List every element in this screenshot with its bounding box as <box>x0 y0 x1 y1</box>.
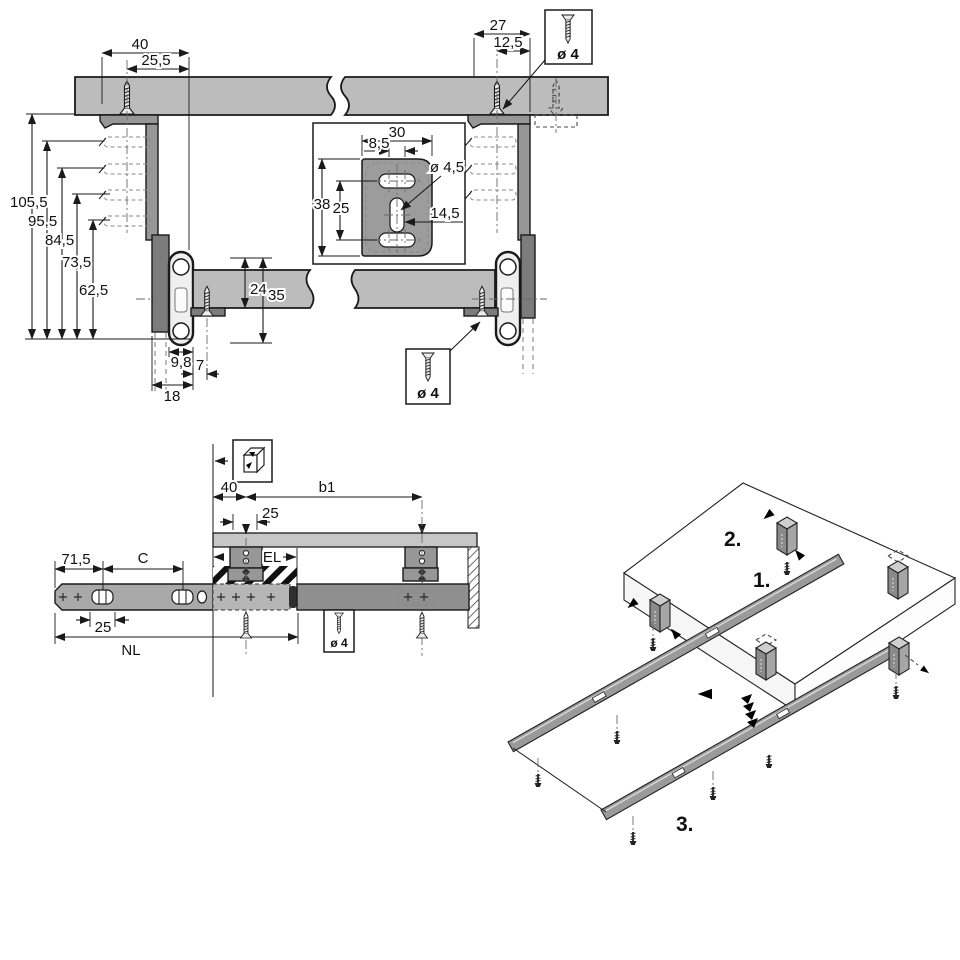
dim-label: 25,5 <box>141 52 170 69</box>
svg-text:9,8: 9,8 <box>171 354 192 371</box>
svg-text:105,5: 105,5 <box>10 194 48 211</box>
isometric-assembly-view: 2. 1. 3. <box>508 483 955 845</box>
top-cross-section-view: 40 25,5 27 12,5 105,5 95,5 84,5 73,5 62,… <box>10 10 608 405</box>
cube-orientation-icon <box>244 448 264 472</box>
svg-text:84,5: 84,5 <box>45 232 74 249</box>
spring-impact-arrows <box>741 694 758 728</box>
svg-text:C: C <box>138 550 149 567</box>
svg-text:12,5: 12,5 <box>493 34 522 51</box>
svg-text:ø 4: ø 4 <box>417 385 439 402</box>
dim-nominal-length: NL <box>55 613 298 659</box>
shelf-right <box>352 270 496 308</box>
shelf-board <box>624 483 955 711</box>
step-label-2: 2. <box>724 528 742 551</box>
side-top-panel <box>213 533 477 547</box>
svg-text:40: 40 <box>221 479 238 496</box>
svg-text:35: 35 <box>268 287 285 304</box>
screw-spec-box-bottom: ø 4 <box>406 322 480 404</box>
top-panel-left <box>75 77 335 115</box>
svg-text:24: 24 <box>250 281 267 298</box>
left-bracket <box>100 115 169 332</box>
svg-text:18: 18 <box>164 388 181 405</box>
svg-text:25: 25 <box>95 619 112 636</box>
cube-orientation-box <box>233 440 272 482</box>
svg-text:73,5: 73,5 <box>62 254 91 271</box>
dim-slot-pitch: 25 <box>76 612 129 636</box>
mounting-plate-detail-box: 30 8,5 ø 4,5 38 25 14,5 <box>313 123 465 264</box>
svg-text:25: 25 <box>333 200 350 217</box>
top-panel-right <box>341 77 608 115</box>
svg-text:14,5: 14,5 <box>430 205 459 222</box>
left-slide-rail <box>169 252 193 345</box>
svg-text:25: 25 <box>262 505 279 522</box>
svg-text:95,5: 95,5 <box>28 213 57 230</box>
svg-text:62,5: 62,5 <box>79 282 108 299</box>
svg-text:ø 4: ø 4 <box>557 46 579 63</box>
ball-bottom <box>173 323 189 339</box>
mounting-bracket <box>888 561 908 599</box>
svg-text:NL: NL <box>121 642 140 659</box>
mounting-bracket <box>756 642 776 680</box>
svg-text:38: 38 <box>314 196 331 213</box>
side-plan-view: 40 b1 25 EL <box>55 440 479 697</box>
dim-rail-width: 9,8 <box>169 347 193 390</box>
svg-text:EL: EL <box>263 549 281 566</box>
dim-bracket-width: 25 <box>220 505 279 530</box>
svg-text:8,5: 8,5 <box>369 135 390 152</box>
dim-label: 40 <box>132 36 149 53</box>
shelf-edge-line <box>513 748 606 812</box>
step-label-1: 1. <box>753 569 771 592</box>
svg-text:ø 4,5: ø 4,5 <box>430 159 464 176</box>
screw-icon <box>241 612 252 638</box>
screw-spec-box-side: ø 4 <box>324 610 354 652</box>
installation-drawing: 40 25,5 27 12,5 105,5 95,5 84,5 73,5 62,… <box>0 0 960 960</box>
svg-text:71,5: 71,5 <box>61 551 90 568</box>
svg-text:27: 27 <box>490 17 507 34</box>
svg-text:7: 7 <box>196 357 204 374</box>
svg-text:30: 30 <box>389 124 406 141</box>
rail-end-cap <box>289 586 297 608</box>
side-rail <box>55 584 469 610</box>
screw-icon <box>417 612 428 638</box>
right-slide-rail <box>496 252 520 345</box>
svg-text:ø 4: ø 4 <box>330 636 348 650</box>
mounting-bracket <box>777 517 797 555</box>
svg-text:b1: b1 <box>319 479 336 496</box>
step-label-3: 3. <box>676 813 694 836</box>
ball-top <box>173 259 189 275</box>
